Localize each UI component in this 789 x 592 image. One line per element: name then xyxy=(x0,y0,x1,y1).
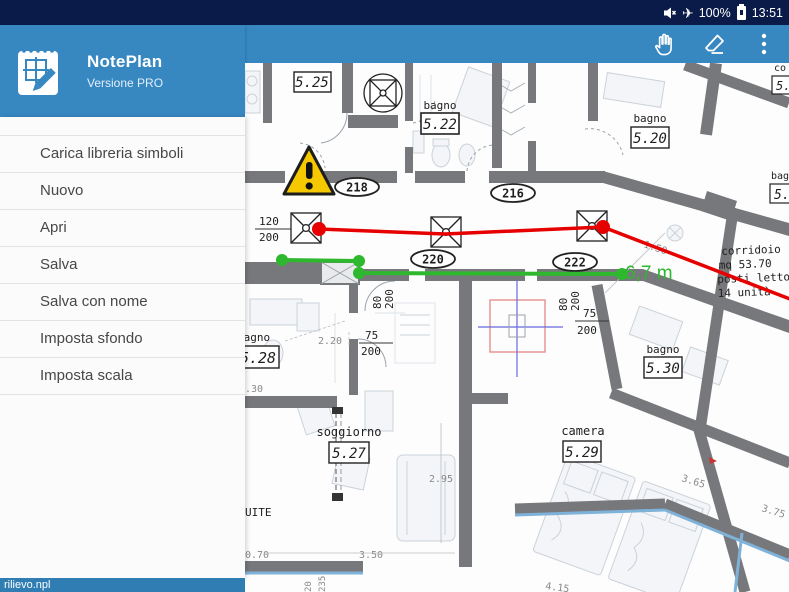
status-time: 13:51 xyxy=(752,6,783,20)
svg-text:3.65: 3.65 xyxy=(680,473,706,491)
battery-icon xyxy=(737,6,746,20)
svg-text:5.28: 5.28 xyxy=(245,349,276,367)
svg-text:5.: 5. xyxy=(774,188,789,203)
menu-item-imposta-sfondo[interactable]: Imposta sfondo xyxy=(0,321,245,358)
room-5-20: bagno 5.20 xyxy=(631,112,669,148)
svg-text:3.50: 3.50 xyxy=(359,550,383,561)
svg-text:bagno: bagno xyxy=(646,343,679,356)
overflow-menu-button[interactable] xyxy=(751,31,777,57)
edge-label-mid: bag 5. xyxy=(770,171,789,203)
svg-text:mq 53.70: mq 53.70 xyxy=(718,257,771,272)
battery-percent: 100% xyxy=(699,6,731,20)
svg-text:bagno: bagno xyxy=(633,112,666,125)
room-5-22: bagno 5.22 xyxy=(421,99,459,134)
svg-text:200: 200 xyxy=(383,289,396,309)
current-file-name: rilievo.npl xyxy=(4,579,50,591)
mute-icon xyxy=(663,6,677,20)
app-subtitle: Versione PRO xyxy=(87,76,163,90)
svg-text:200: 200 xyxy=(577,324,597,337)
svg-text:5.25: 5.25 xyxy=(295,75,329,91)
svg-text:3.75: 3.75 xyxy=(760,503,786,521)
svg-text:235: 235 xyxy=(318,576,328,592)
room-5-25: 5.25 xyxy=(294,72,331,92)
room-5-29: camera 5.29 xyxy=(561,424,604,462)
svg-text:5.27: 5.27 xyxy=(332,446,366,462)
svg-text:216: 216 xyxy=(502,187,524,201)
svg-text:UITE: UITE xyxy=(245,506,272,519)
pan-hand-button[interactable] xyxy=(651,31,677,57)
app-title: NotePlan xyxy=(87,52,163,72)
menu-item-salva[interactable]: Salva xyxy=(0,247,245,284)
menu-item-carica-libreria[interactable]: Carica libreria simboli xyxy=(0,136,245,173)
svg-text:5.30: 5.30 xyxy=(646,361,680,377)
svg-text:200: 200 xyxy=(361,345,381,358)
svg-text:120: 120 xyxy=(259,215,279,228)
airplane-mode-icon: ✈ xyxy=(682,6,694,20)
room-5-30: bagno 5.30 xyxy=(644,343,682,378)
svg-text:75: 75 xyxy=(583,307,596,320)
corridor-note: corridoio mq 53.70 posti letto 14 unità xyxy=(716,242,789,300)
measurement-label: 6,7 m xyxy=(625,263,673,284)
svg-text:200: 200 xyxy=(569,291,582,311)
svg-text:4.15: 4.15 xyxy=(545,581,570,592)
svg-text:2.20: 2.20 xyxy=(318,336,342,347)
svg-text:bagno: bagno xyxy=(245,331,270,344)
svg-text:.30: .30 xyxy=(245,384,263,395)
svg-text:75: 75 xyxy=(365,329,378,342)
file-name-bar: rilievo.npl xyxy=(0,578,245,592)
toolbar xyxy=(651,25,777,63)
placement-crosshair[interactable] xyxy=(478,280,563,377)
svg-text:5.: 5. xyxy=(776,79,789,93)
noteplan-app-window: ✈ 100% 13:51 xyxy=(0,0,789,592)
room-5-27: soggiorno 5.27 xyxy=(316,425,381,463)
menu-item-apri[interactable]: Apri xyxy=(0,210,245,247)
door-number-ovals: 218 216 220 222 xyxy=(335,178,597,271)
svg-text:co: co xyxy=(774,63,786,74)
svg-text:soggiorno: soggiorno xyxy=(316,425,381,439)
svg-text:5.20: 5.20 xyxy=(633,131,667,147)
svg-text:222: 222 xyxy=(564,256,586,270)
status-bar: ✈ 100% 13:51 xyxy=(0,0,789,25)
svg-text:218: 218 xyxy=(346,181,368,195)
eraser-button[interactable] xyxy=(701,31,727,57)
sidebar-header: NotePlan Versione PRO xyxy=(0,25,245,117)
room-5-28: bagno 5.28 xyxy=(245,331,279,368)
svg-text:corridoio: corridoio xyxy=(721,243,781,258)
menu-item-nuovo[interactable]: Nuovo xyxy=(0,173,245,210)
svg-text:5.29: 5.29 xyxy=(565,445,599,461)
noteplan-logo-icon xyxy=(15,44,61,98)
svg-text:20: 20 xyxy=(304,581,314,592)
svg-text:bag: bag xyxy=(771,171,789,182)
edge-label-top: co 5. xyxy=(772,63,789,94)
menu-item-salva-con-nome[interactable]: Salva con nome xyxy=(0,284,245,321)
svg-text:220: 220 xyxy=(422,253,444,267)
svg-text:200: 200 xyxy=(259,231,279,244)
svg-text:bagno: bagno xyxy=(423,99,456,112)
sidebar-drawer: Carica libreria simboli Nuovo Apri Salva… xyxy=(0,117,245,578)
plan-canvas[interactable]: 5.25 bagno 5.22 bagno 5.20 bagno 5.28 xyxy=(245,63,789,592)
main-menu: Carica libreria simboli Nuovo Apri Salva… xyxy=(0,135,245,395)
menu-item-imposta-scala[interactable]: Imposta scala xyxy=(0,358,245,395)
svg-text:camera: camera xyxy=(561,424,604,438)
svg-text:5.22: 5.22 xyxy=(423,117,457,133)
svg-text:0.70: 0.70 xyxy=(245,550,269,561)
warning-triangle-icon[interactable] xyxy=(284,147,334,194)
